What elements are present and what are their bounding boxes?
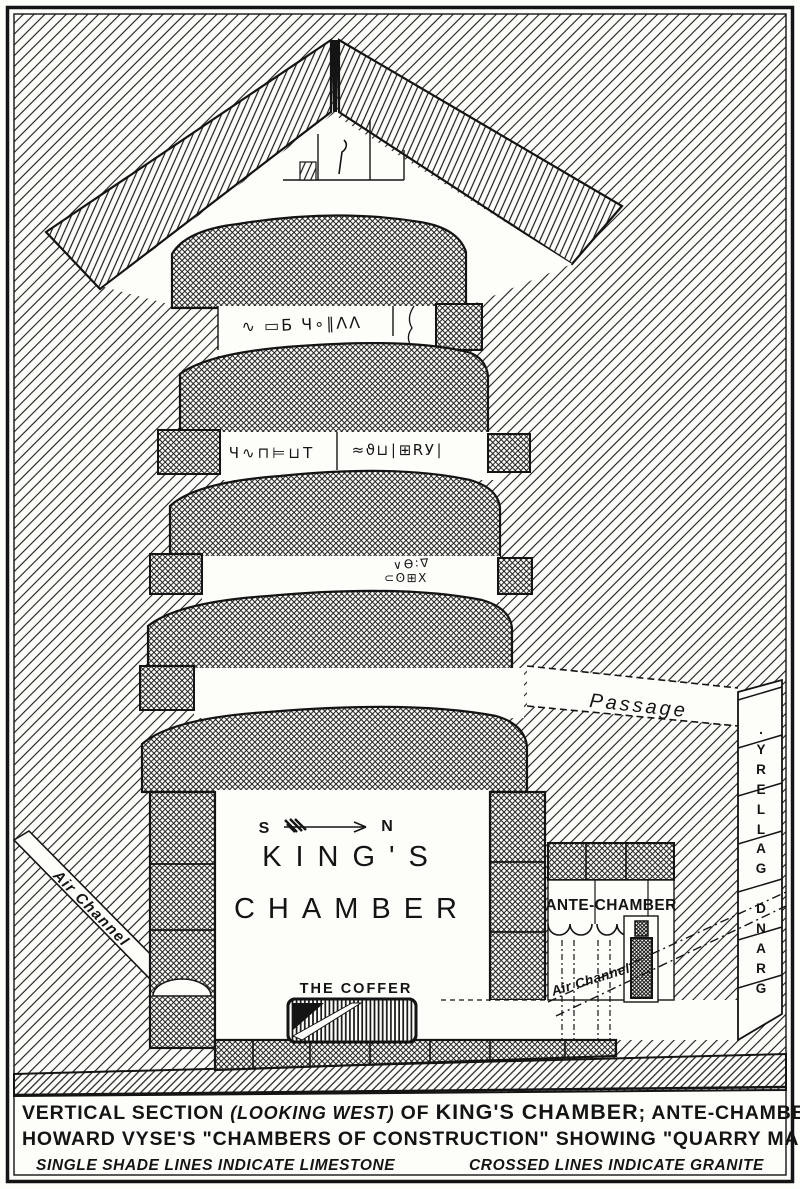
compass-south-label: S (259, 820, 270, 837)
beam-support-3r (498, 558, 532, 594)
beam-support-4l (140, 666, 194, 710)
coffer (288, 999, 416, 1042)
granite-beam-1 (172, 215, 466, 308)
granite-beam-5 (142, 707, 527, 792)
granite-beam-3 (170, 471, 500, 558)
beam-support-3l (150, 554, 202, 594)
kc-wall-right (490, 792, 545, 1000)
kc-wall-left (150, 792, 215, 1048)
caption-line1: VERTICAL SECTION (LOOKING WEST) OF KING'… (22, 1100, 778, 1125)
caption-line2: HOWARD VYSE'S "CHAMBERS OF CONSTRUCTION"… (22, 1128, 778, 1151)
quarry-marks-band3-line1: ∨ϴ∶∇ (393, 556, 431, 573)
beam-support-2r (488, 434, 530, 472)
caption-line1-big: KING'S CHAMBER (436, 1100, 639, 1124)
kings-chamber-label-line1: KING'S (262, 841, 442, 873)
granite-beam-2 (180, 343, 488, 434)
caption-line1-mid: OF (394, 1102, 435, 1124)
kings-chamber-label-line2: CHAMBER (234, 893, 470, 925)
quarry-marks-band2-right: ≈ϑ⊔∣⊞RУ∣ (352, 441, 445, 459)
compass-north-label: N (381, 818, 393, 835)
engraving-plate: S N KING'S CHAMBER THE COFFER ANTE-CHAMB… (0, 0, 800, 1189)
caption-line1-italic: (LOOKING WEST) (230, 1103, 394, 1123)
portcullis-slab (631, 938, 652, 998)
caption-legend-granite: CROSSED LINES INDICATE GRANITE (469, 1157, 764, 1175)
beam-support-1r (436, 304, 482, 350)
caption-line1-tail: ; ANTE-CHAMBER AND (639, 1102, 800, 1124)
quarry-marks-band3-line2: ⊂ʘ⊞X (384, 571, 428, 585)
ante-roof-blocks (548, 843, 674, 880)
caption-line1-pre: VERTICAL SECTION (22, 1102, 230, 1124)
keystone-patch (300, 162, 316, 180)
section-diagram: S N KING'S CHAMBER THE COFFER ANTE-CHAMB… (0, 0, 800, 1189)
caption: VERTICAL SECTION (LOOKING WEST) OF KING'… (22, 1100, 778, 1175)
floor-passage (490, 1000, 738, 1040)
beam-support-2l (158, 430, 220, 474)
quarry-marks-band2-left: Ч∿⊓⊨⊔T (229, 444, 316, 462)
coffer-label: THE COFFER (300, 981, 413, 997)
caption-line3: SINGLE SHADE LINES INDICATE LIMESTONE CR… (22, 1157, 778, 1175)
caption-legend-limestone: SINGLE SHADE LINES INDICATE LIMESTONE (36, 1157, 395, 1175)
ante-chamber-label: ANTE-CHAMBER (545, 897, 676, 914)
portcullis-cap (635, 921, 648, 936)
grand-gallery-label: .YRELLAG DNARG (745, 720, 777, 999)
